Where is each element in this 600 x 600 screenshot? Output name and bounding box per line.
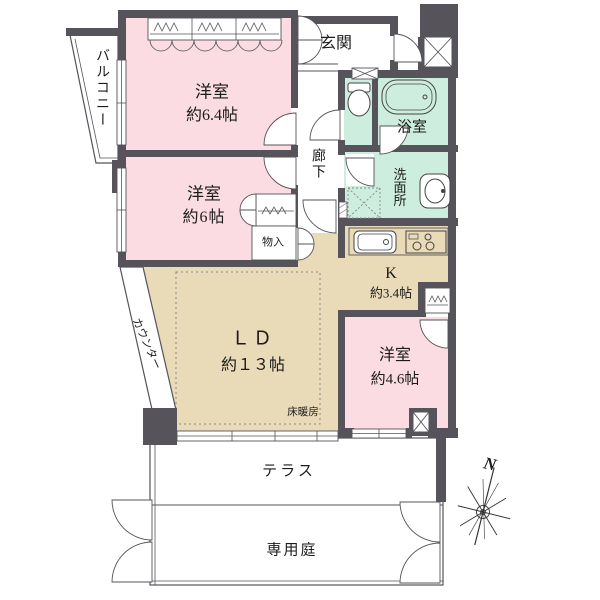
- gate-right-b: [400, 543, 440, 583]
- kitchen-size: 約3.4帖: [370, 287, 412, 300]
- pipe-space-top: [424, 37, 452, 67]
- garden-label: 専用庭: [266, 544, 317, 559]
- toilet-icon: [348, 83, 370, 116]
- wall-hatch-window: [339, 202, 347, 218]
- terrace-garden-outline: [150, 438, 443, 585]
- living-dining-name: ＬＤ: [231, 330, 275, 349]
- bedroom-46-size: 約4.6帖: [371, 373, 420, 388]
- pipe-space-bottom: [413, 412, 429, 432]
- gate-left-b: [112, 542, 152, 582]
- floorplan: バルコニー 洋室 約6.4帖 洋室 約6帖 玄関 廊下 浴室 洗面所 物入 K …: [0, 0, 600, 600]
- corridor-label: 廊下: [310, 148, 324, 180]
- kitchen-passage: [338, 258, 345, 310]
- door-toilet: [310, 110, 340, 140]
- storage-label: 物入: [262, 238, 284, 249]
- door-living: [303, 200, 336, 233]
- kitchen-name: K: [385, 266, 397, 282]
- washroom-label: 洗面所: [393, 168, 406, 207]
- bedroom-46-name: 洋室: [379, 348, 411, 364]
- floor-heating-label: 床暖房: [287, 408, 319, 419]
- compass-icon: [450, 461, 522, 552]
- entrance-label: 玄関: [320, 36, 352, 52]
- bedroom-6-name: 洋室: [187, 186, 221, 203]
- washbasin-icon: [420, 174, 450, 208]
- door-entrance: [394, 34, 422, 62]
- floorplan-drawing: [0, 0, 600, 600]
- bathroom-label: 浴室: [397, 121, 427, 136]
- door-shoe-cabinet-b: [298, 40, 322, 64]
- closet-46: [425, 288, 450, 313]
- living-dining-size: 約１３帖: [221, 358, 285, 374]
- kitchen-sink-icon: [354, 231, 396, 253]
- entrance-step: [298, 64, 338, 71]
- gate-left-a: [112, 500, 152, 540]
- gate-right-a: [400, 502, 440, 542]
- bedroom-6-size: 約6帖: [182, 210, 225, 226]
- terrace-label: テラス: [262, 465, 316, 480]
- bedroom-64-size: 約6.4帖: [186, 108, 238, 124]
- balcony-label: バルコニー: [94, 48, 108, 128]
- door-storage-a: [298, 228, 314, 244]
- closet-side: [252, 194, 296, 260]
- bedroom-64-name: 洋室: [195, 84, 229, 101]
